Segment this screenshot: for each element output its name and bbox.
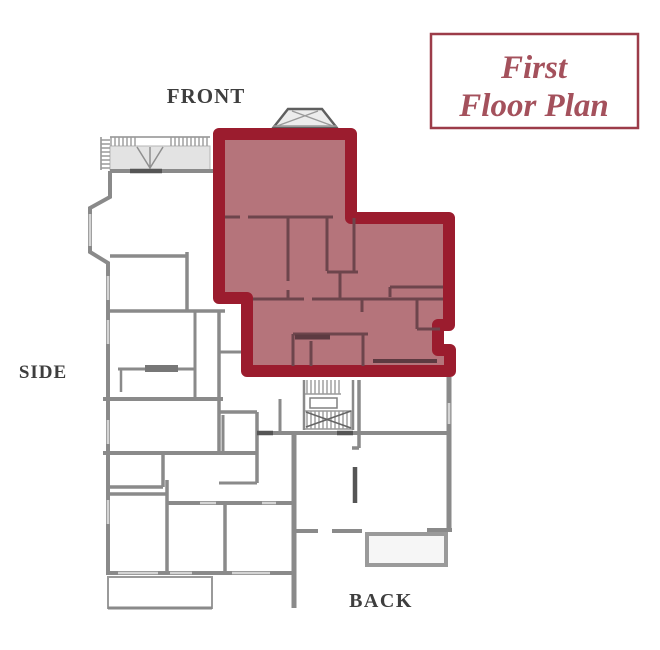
floor-plan-svg: First Floor Plan FRONT SIDE BACK [0, 0, 660, 650]
staircase [304, 380, 353, 430]
bay-window-top [273, 109, 337, 128]
floor-plan-image: First Floor Plan FRONT SIDE BACK [0, 0, 660, 650]
highlighted-unit [219, 134, 450, 371]
label-front: FRONT [167, 84, 246, 108]
built-in [145, 365, 178, 372]
stair-direction-lines [306, 411, 351, 428]
stair-landing [310, 398, 337, 408]
label-side: SIDE [19, 362, 67, 383]
porch-slab [110, 146, 210, 170]
label-back: BACK [349, 590, 413, 612]
front-porch [101, 137, 214, 171]
stair-treads-upper [305, 380, 341, 394]
title-box: First Floor Plan [431, 34, 638, 128]
porch-balusters-left [101, 140, 110, 168]
back-porch [367, 534, 446, 565]
title-line-2: Floor Plan [458, 88, 608, 124]
porch-balusters-top [111, 137, 207, 146]
bay-outline [273, 109, 337, 128]
title-line-1: First [500, 50, 568, 86]
back-left-porch [108, 577, 212, 608]
